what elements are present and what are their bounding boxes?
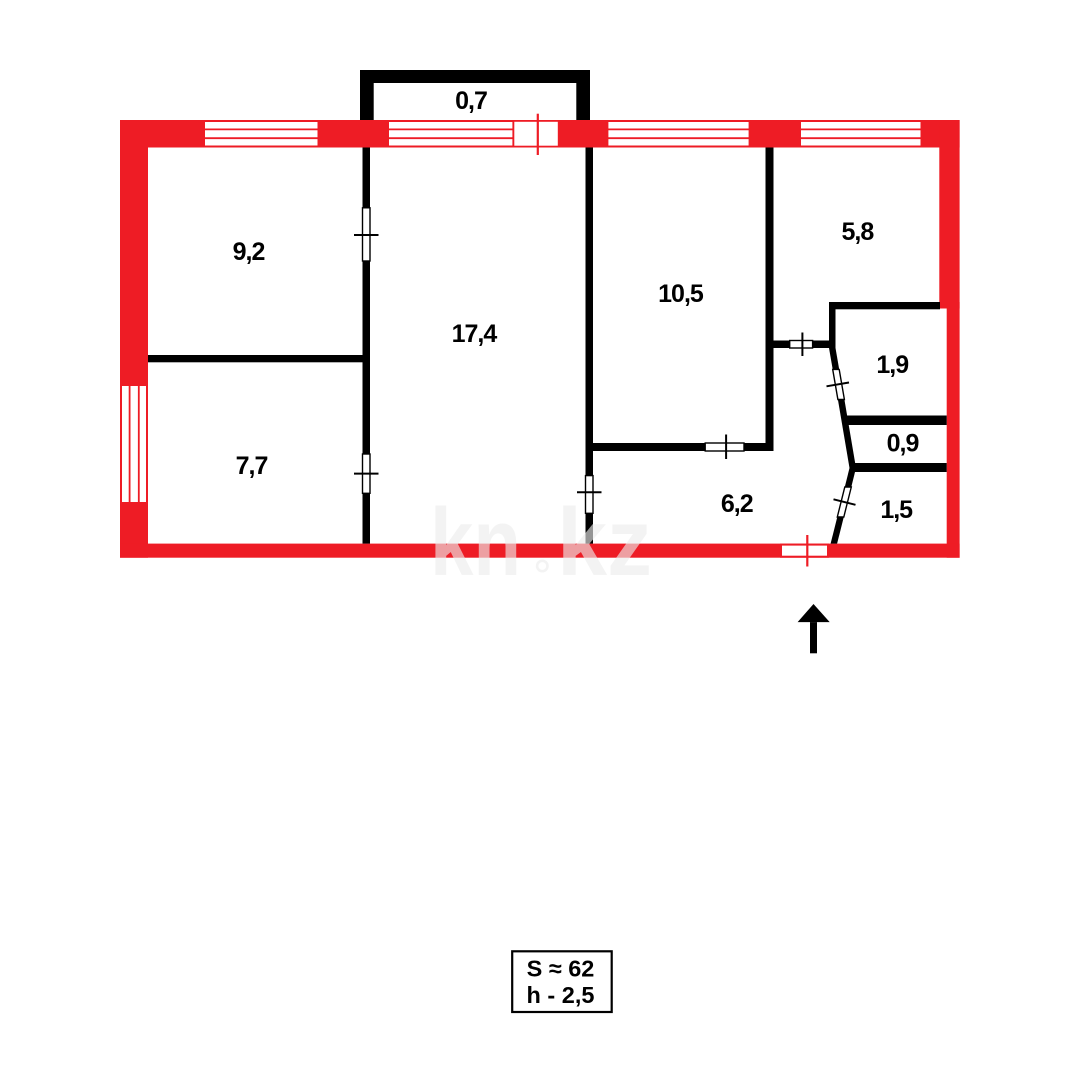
svg-text:6,2: 6,2 <box>721 490 753 518</box>
svg-text:kz: kz <box>557 489 652 596</box>
svg-text:1,5: 1,5 <box>880 496 913 524</box>
svg-text:S ≈ 62: S ≈ 62 <box>527 956 595 982</box>
svg-text:0,7: 0,7 <box>455 87 487 115</box>
svg-text:1,9: 1,9 <box>876 351 908 379</box>
svg-text:9,2: 9,2 <box>233 238 265 266</box>
svg-text:h - 2,5: h - 2,5 <box>527 982 595 1008</box>
svg-text:17,4: 17,4 <box>452 320 498 348</box>
svg-text:10,5: 10,5 <box>658 280 704 308</box>
svg-text:5,8: 5,8 <box>842 218 875 246</box>
svg-text:7,7: 7,7 <box>236 452 268 480</box>
svg-text:0,9: 0,9 <box>887 429 919 457</box>
svg-text:kn: kn <box>430 489 521 596</box>
